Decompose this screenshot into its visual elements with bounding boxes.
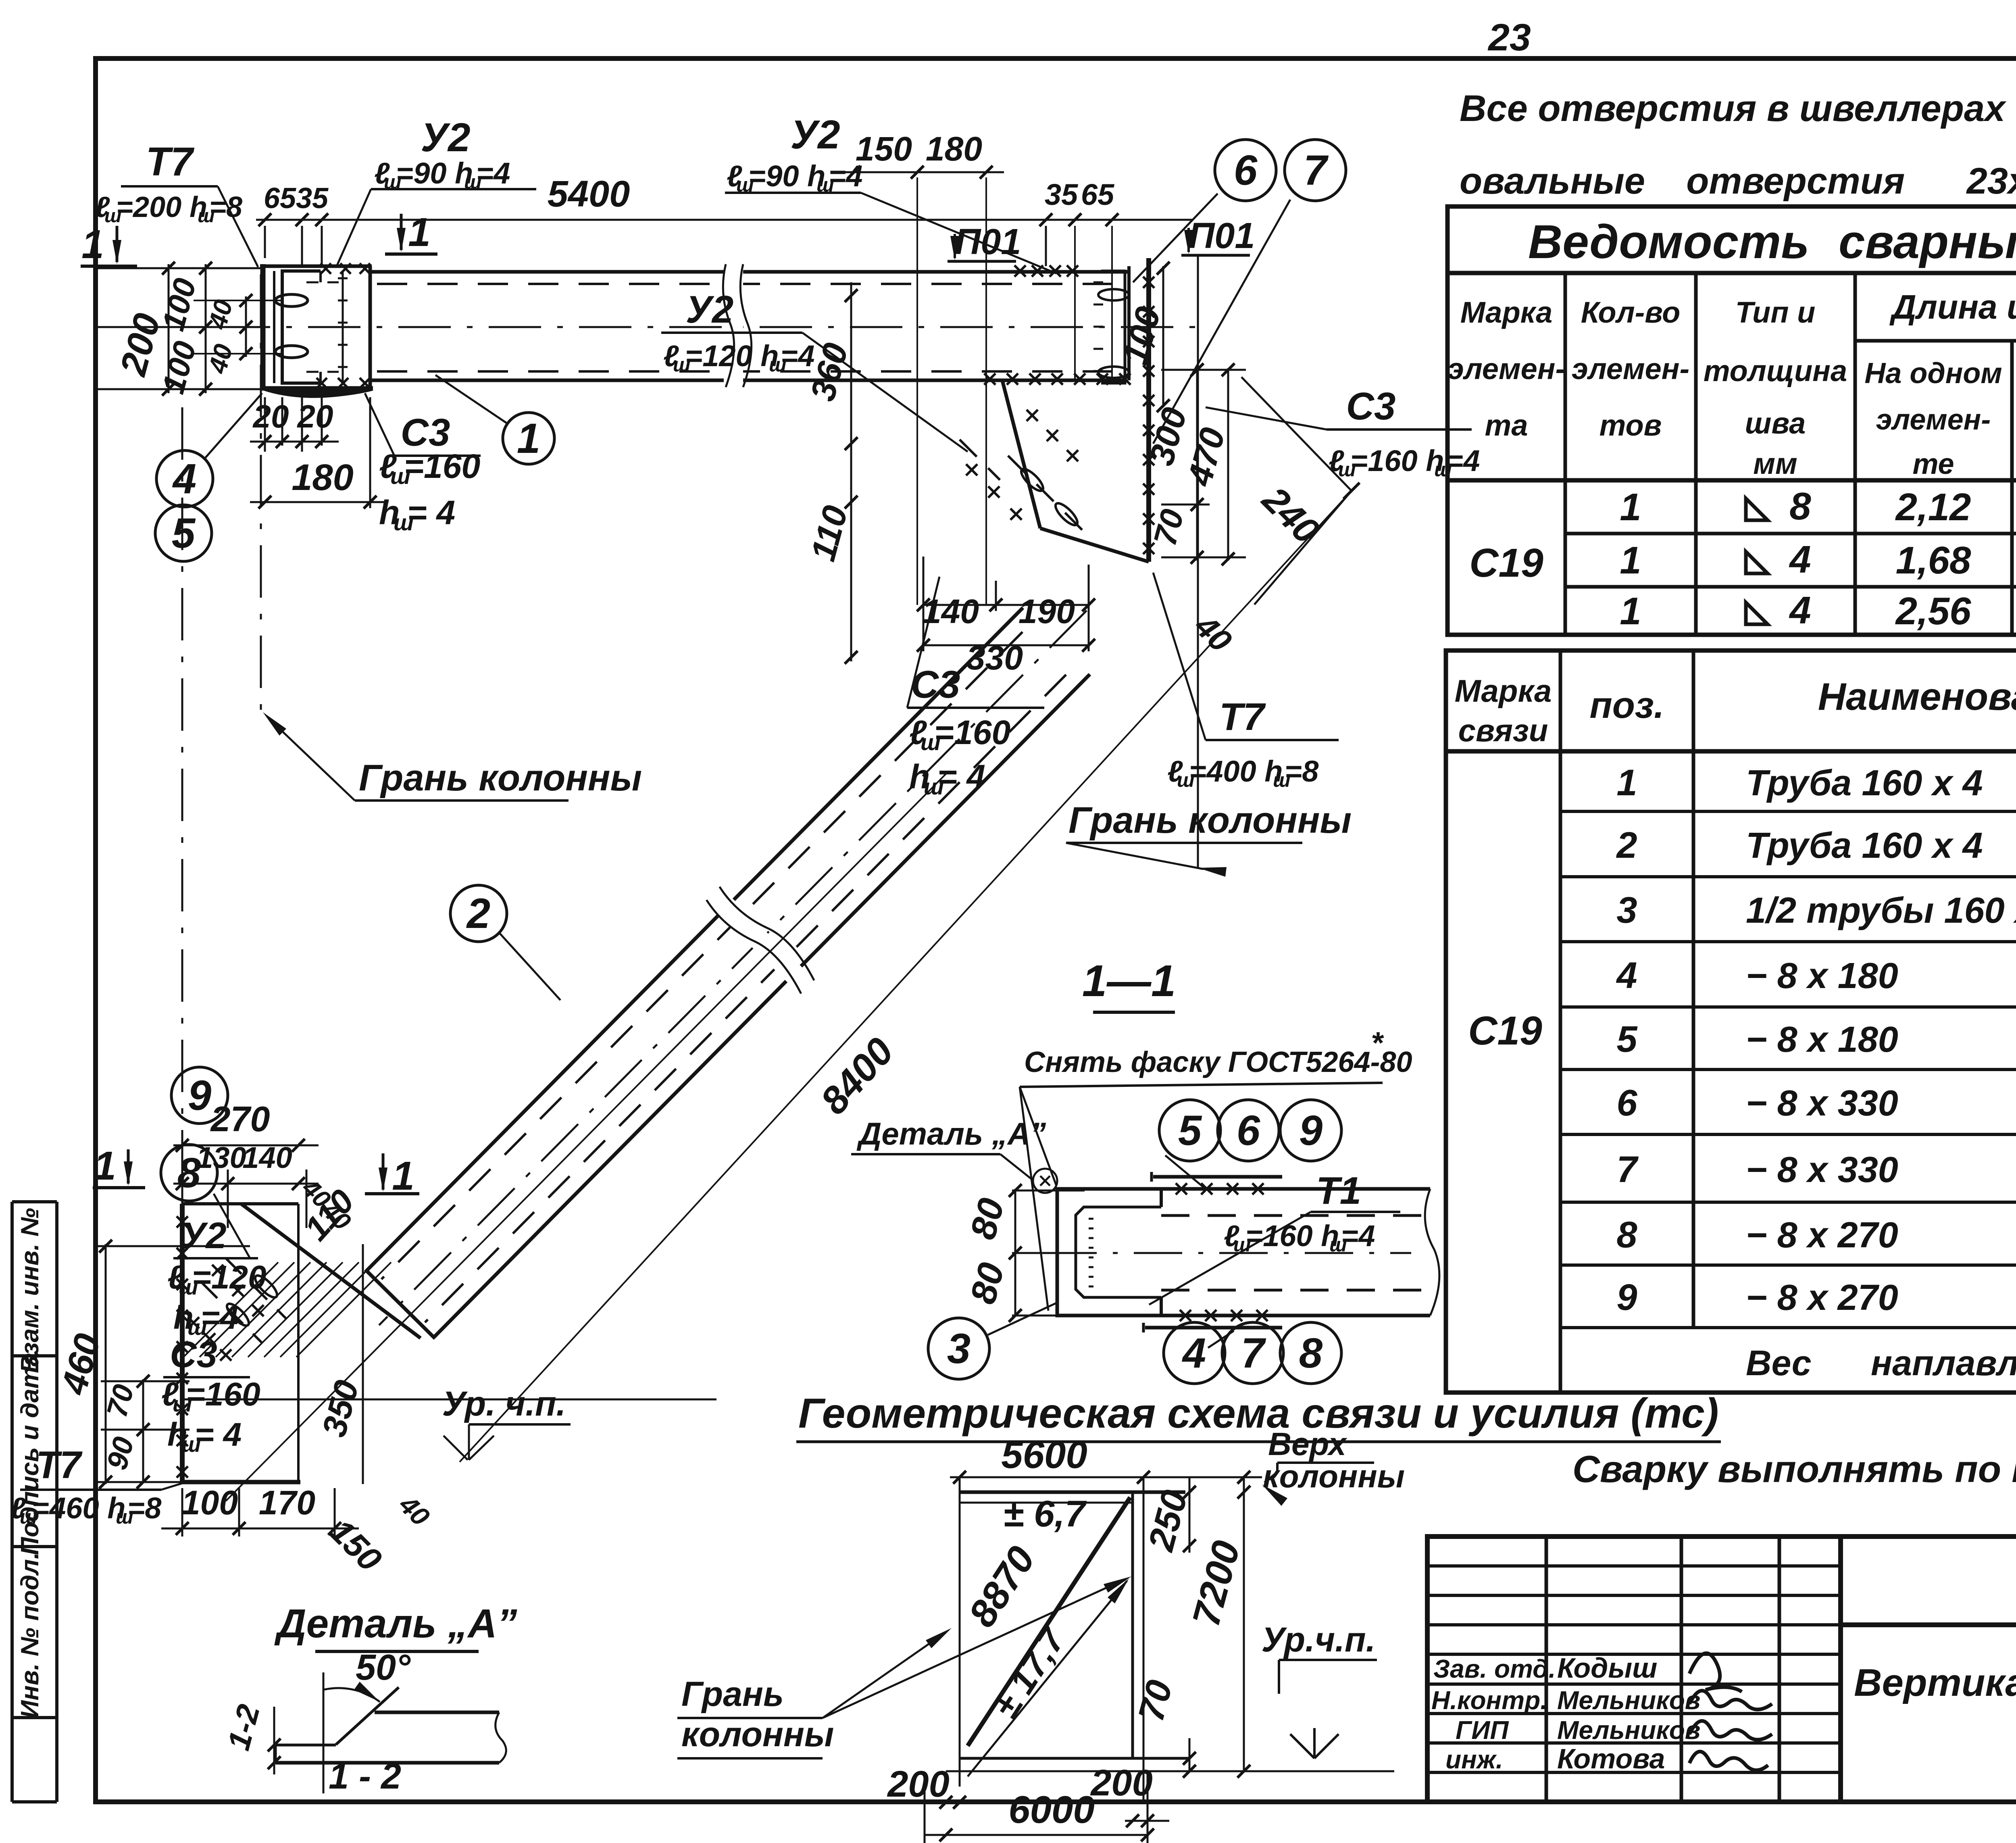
svg-text:=4: =4 — [1341, 1219, 1375, 1253]
svg-text:7: 7 — [1304, 147, 1329, 194]
svg-text:Длина шва , М: Длина шва , М — [1889, 288, 2016, 326]
svg-text:Н.контр.: Н.контр. — [1431, 1686, 1547, 1715]
svg-text:ГИП: ГИП — [1456, 1716, 1509, 1745]
svg-text:3: 3 — [1616, 890, 1637, 931]
svg-text:8: 8 — [177, 1149, 201, 1197]
svg-text:Инв. № подл.: Инв. № подл. — [16, 1552, 44, 1718]
svg-text:Все отверстия в швеллерах: Все отверстия в швеллерах Ф=19мм , в фас… — [1460, 88, 2016, 129]
svg-text:П01: П01 — [955, 222, 1021, 262]
svg-text:наплавленного: наплавленного — [1871, 1343, 2016, 1383]
svg-text:150: 150 — [856, 130, 912, 168]
svg-text:35: 35 — [1045, 178, 1079, 211]
svg-text:=160: =160 — [186, 1376, 260, 1413]
svg-text:Т7: Т7 — [36, 1443, 83, 1486]
svg-text:8: 8 — [1299, 1330, 1323, 1377]
svg-text:1—1: 1—1 — [1082, 956, 1176, 1006]
svg-text:180: 180 — [292, 457, 354, 498]
svg-text:Вес: Вес — [1746, 1343, 1812, 1383]
svg-text:35: 35 — [296, 182, 329, 215]
svg-text:С19: С19 — [1469, 540, 1543, 586]
svg-text:− 8 х 180: − 8 х 180 — [1746, 956, 1898, 996]
svg-text:У2: У2 — [686, 288, 733, 331]
svg-text:элемен-: элемен- — [1447, 352, 1565, 386]
svg-text:Деталь „А”: Деталь „А” — [856, 1116, 1046, 1151]
svg-text:те: те — [1912, 448, 1954, 480]
svg-text:= 4: = 4 — [407, 494, 455, 532]
svg-text:=160: =160 — [404, 447, 480, 485]
svg-text:7: 7 — [1616, 1149, 1639, 1190]
svg-text:− 8 х 330: − 8 х 330 — [1746, 1150, 1898, 1190]
svg-text:толщина: толщина — [1704, 354, 1847, 388]
svg-text:6000: 6000 — [1008, 1788, 1095, 1831]
svg-text:элемен-: элемен- — [1572, 352, 1689, 386]
svg-text:= 4: = 4 — [195, 1416, 242, 1453]
svg-text:=120 h: =120 h — [685, 339, 779, 373]
svg-text:4: 4 — [1789, 589, 1811, 632]
svg-text:У2: У2 — [790, 112, 840, 157]
svg-text:=200 h: =200 h — [116, 191, 207, 223]
svg-text:− 8 х 180: − 8 х 180 — [1746, 1019, 1898, 1060]
svg-text:4: 4 — [172, 455, 196, 502]
svg-text:=8: =8 — [127, 1491, 162, 1525]
svg-text:=160 h: =160 h — [1245, 1219, 1339, 1253]
svg-text:С19: С19 — [1468, 1008, 1542, 1053]
svg-text:− 8 х 270: − 8 х 270 — [1746, 1278, 1898, 1318]
svg-text:1: 1 — [408, 210, 431, 255]
svg-text:50°: 50° — [356, 1647, 411, 1688]
svg-text:23: 23 — [1487, 16, 1531, 59]
svg-text:190: 190 — [1018, 592, 1075, 630]
svg-text:6: 6 — [1234, 147, 1258, 194]
svg-text:Грань: Грань — [681, 1675, 784, 1714]
svg-text:Марка: Марка — [1455, 673, 1552, 709]
svg-text:200: 200 — [1090, 1762, 1153, 1803]
svg-text:Т7: Т7 — [146, 139, 195, 184]
svg-text:Взам. инв. №: Взам. инв. № — [16, 1208, 44, 1373]
svg-text:Ур.ч.п.: Ур.ч.п. — [1262, 1620, 1376, 1659]
svg-text:колонны: колонны — [681, 1715, 834, 1754]
svg-text:Верх: Верх — [1268, 1426, 1347, 1462]
svg-text:Грань колонны: Грань колонны — [359, 757, 642, 798]
svg-text:270: 270 — [210, 1099, 270, 1139]
svg-text:− 8 х 270: − 8 х 270 — [1746, 1215, 1898, 1255]
svg-text:та: та — [1485, 409, 1528, 442]
svg-text:1/2 трубы 160 х 4: 1/2 трубы 160 х 4 — [1746, 890, 2016, 931]
svg-text:1: 1 — [1620, 539, 1641, 582]
svg-text:1: 1 — [81, 222, 104, 267]
svg-text:1: 1 — [517, 415, 540, 462]
svg-text:Т7: Т7 — [1219, 695, 1266, 738]
svg-text:сварных: сварных — [1839, 215, 2016, 269]
svg-text:овальные отверстия 23х: овальные отверстия 23х40 — [1460, 161, 2016, 202]
svg-text:Кол-во: Кол-во — [1581, 296, 1681, 329]
svg-text:20: 20 — [297, 398, 333, 434]
svg-text:4: 4 — [1182, 1330, 1206, 1377]
svg-text:=8: =8 — [209, 191, 242, 223]
svg-text:=90 h: =90 h — [748, 159, 825, 193]
svg-text:мм: мм — [1753, 447, 1797, 480]
svg-text:5400: 5400 — [548, 173, 630, 215]
svg-text:Кодыш: Кодыш — [1557, 1652, 1657, 1684]
svg-text:=120: =120 — [192, 1259, 267, 1296]
svg-text:=400 h: =400 h — [1189, 755, 1283, 788]
svg-text:поз.: поз. — [1590, 685, 1664, 726]
svg-text:У2: У2 — [421, 115, 470, 160]
svg-text:Снять фаску ГОСТ5264-80: Снять фаску ГОСТ5264-80 — [1024, 1046, 1412, 1078]
svg-text:140: 140 — [923, 592, 979, 630]
svg-text:=460 h: =460 h — [32, 1491, 125, 1525]
svg-text:У2: У2 — [181, 1215, 226, 1256]
svg-text:Марка: Марка — [1460, 296, 1552, 329]
svg-text:180: 180 — [926, 130, 982, 168]
svg-text:65: 65 — [1081, 178, 1115, 211]
svg-text:20: 20 — [252, 398, 289, 434]
svg-text:Мельников: Мельников — [1557, 1716, 1700, 1745]
svg-text:5: 5 — [1178, 1107, 1202, 1154]
svg-text:65: 65 — [264, 182, 296, 215]
svg-text:=160 h: =160 h — [1350, 444, 1444, 477]
svg-text:6: 6 — [1237, 1107, 1260, 1154]
svg-text:5600: 5600 — [1001, 1433, 1087, 1476]
svg-text:1: 1 — [94, 1143, 116, 1188]
svg-text:На одном: На одном — [1864, 357, 2002, 390]
svg-text:5: 5 — [1616, 1019, 1638, 1060]
svg-text:С3: С3 — [911, 663, 960, 706]
svg-text:связи: связи — [1458, 713, 1548, 748]
svg-text:2: 2 — [466, 890, 490, 937]
svg-text:200: 200 — [887, 1764, 950, 1805]
svg-text:2: 2 — [1616, 825, 1637, 866]
svg-text:С3: С3 — [1346, 385, 1396, 428]
svg-text:Труба 160 х 4: Труба 160 х 4 — [1746, 763, 1983, 803]
svg-text:Т1: Т1 — [1316, 1169, 1361, 1212]
svg-text:7: 7 — [1241, 1330, 1266, 1377]
svg-text:=8: =8 — [1285, 755, 1319, 788]
svg-text:тов: тов — [1599, 409, 1662, 442]
svg-text:Ур. ч.п.: Ур. ч.п. — [442, 1384, 566, 1423]
svg-text:6: 6 — [1616, 1082, 1637, 1124]
svg-text:9: 9 — [188, 1072, 211, 1119]
svg-text:8: 8 — [1616, 1214, 1637, 1255]
svg-text:− 8 х 330: − 8 х 330 — [1746, 1083, 1898, 1124]
svg-text:170: 170 — [259, 1484, 315, 1522]
svg-text:1: 1 — [392, 1153, 414, 1199]
svg-text:Деталь „А”: Деталь „А” — [274, 1601, 517, 1646]
svg-text:4: 4 — [1789, 538, 1811, 581]
svg-text:Сварку выполнять по ГОСТ 52: Сварку выполнять по ГОСТ 5264-80.* — [1572, 1448, 2016, 1490]
svg-text:шва: шва — [1745, 407, 1806, 440]
svg-text:4: 4 — [1616, 955, 1637, 996]
svg-text:5: 5 — [172, 510, 196, 557]
svg-text:С3: С3 — [170, 1334, 217, 1375]
svg-text:Тип и: Тип и — [1735, 296, 1816, 329]
svg-text:± 6,7: ± 6,7 — [1003, 1493, 1087, 1534]
svg-text:1: 1 — [1616, 762, 1637, 803]
svg-text:Геометрическая схема связи: Геометрическая схема связи и усилия (тс) — [798, 1390, 1719, 1437]
svg-text:=4: =4 — [201, 1299, 239, 1336]
svg-text:Труба 160 х 4: Труба 160 х 4 — [1746, 826, 1983, 866]
svg-text:100: 100 — [181, 1484, 238, 1522]
svg-text:Ведомость: Ведомость — [1528, 215, 1809, 269]
svg-text:=160: =160 — [934, 713, 1010, 751]
svg-text:1: 1 — [1620, 486, 1641, 529]
svg-text:3: 3 — [947, 1325, 971, 1372]
svg-text:=4: =4 — [781, 339, 814, 373]
svg-text:*: * — [1371, 1026, 1384, 1060]
svg-text:8: 8 — [1789, 485, 1811, 528]
svg-text:инж.: инж. — [1445, 1745, 1503, 1774]
svg-text:1: 1 — [1620, 590, 1641, 633]
svg-text:1,68: 1,68 — [1896, 539, 1971, 582]
svg-text:9: 9 — [1616, 1277, 1637, 1318]
svg-text:2,56: 2,56 — [1895, 590, 1971, 633]
svg-text:Вертикальная связь: Вертикальная связь — [1854, 1661, 2016, 1704]
svg-text:2,12: 2,12 — [1895, 486, 1971, 529]
svg-text:Грань колонны: Грань колонны — [1068, 800, 1352, 841]
svg-text:=90 h: =90 h — [396, 156, 473, 190]
svg-text:=4: =4 — [829, 159, 862, 193]
svg-text:Мельников: Мельников — [1557, 1686, 1700, 1715]
svg-text:1 - 2: 1 - 2 — [329, 1756, 401, 1797]
svg-text:Котова: Котова — [1557, 1743, 1665, 1774]
svg-text:П01: П01 — [1189, 216, 1255, 256]
svg-text:=4: =4 — [476, 156, 510, 190]
svg-text:=4: =4 — [1446, 444, 1480, 477]
svg-text:Наименование: Наименование — [1818, 675, 2016, 718]
svg-text:9: 9 — [1299, 1107, 1322, 1154]
svg-text:элемен-: элемен- — [1876, 404, 1991, 436]
svg-text:Зав. отд.: Зав. отд. — [1433, 1654, 1556, 1683]
